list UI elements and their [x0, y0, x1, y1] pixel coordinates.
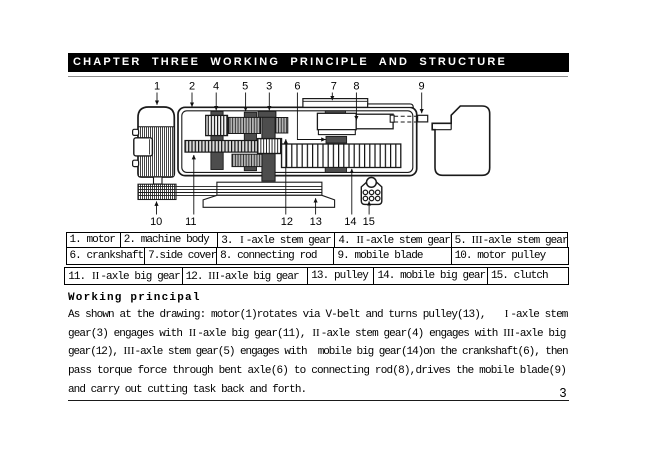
svg-text:15: 15	[363, 216, 375, 228]
svg-text:8: 8	[353, 81, 359, 93]
svg-text:11: 11	[185, 216, 196, 228]
svg-text:9: 9	[418, 81, 424, 93]
svg-text:7: 7	[331, 81, 337, 93]
svg-text:6: 6	[294, 81, 300, 93]
svg-text:13: 13	[310, 216, 322, 228]
svg-text:5: 5	[242, 81, 248, 93]
svg-text:14: 14	[344, 216, 356, 228]
svg-text:10: 10	[150, 216, 162, 228]
svg-text:4: 4	[213, 81, 219, 93]
svg-text:3: 3	[266, 81, 272, 93]
svg-text:12: 12	[281, 216, 293, 228]
svg-text:2: 2	[189, 81, 195, 93]
svg-text:1: 1	[154, 81, 160, 93]
